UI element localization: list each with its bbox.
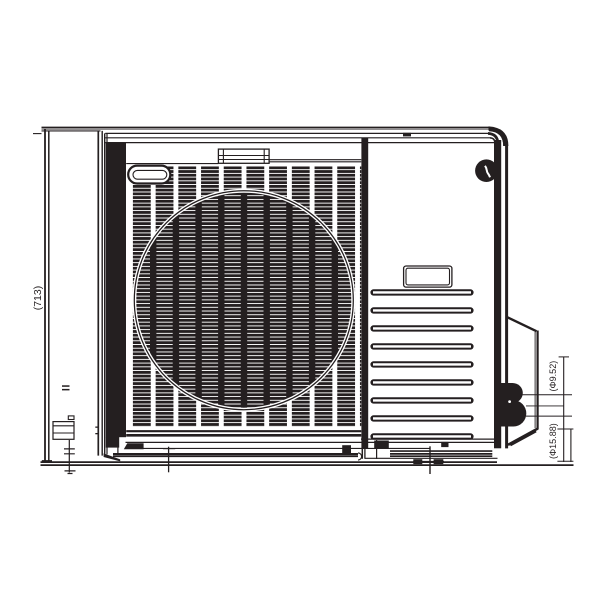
- svg-text:(Φ9.52): (Φ9.52): [548, 361, 558, 392]
- svg-text:(Φ15.88): (Φ15.88): [548, 423, 558, 459]
- svg-text:(713): (713): [32, 286, 44, 311]
